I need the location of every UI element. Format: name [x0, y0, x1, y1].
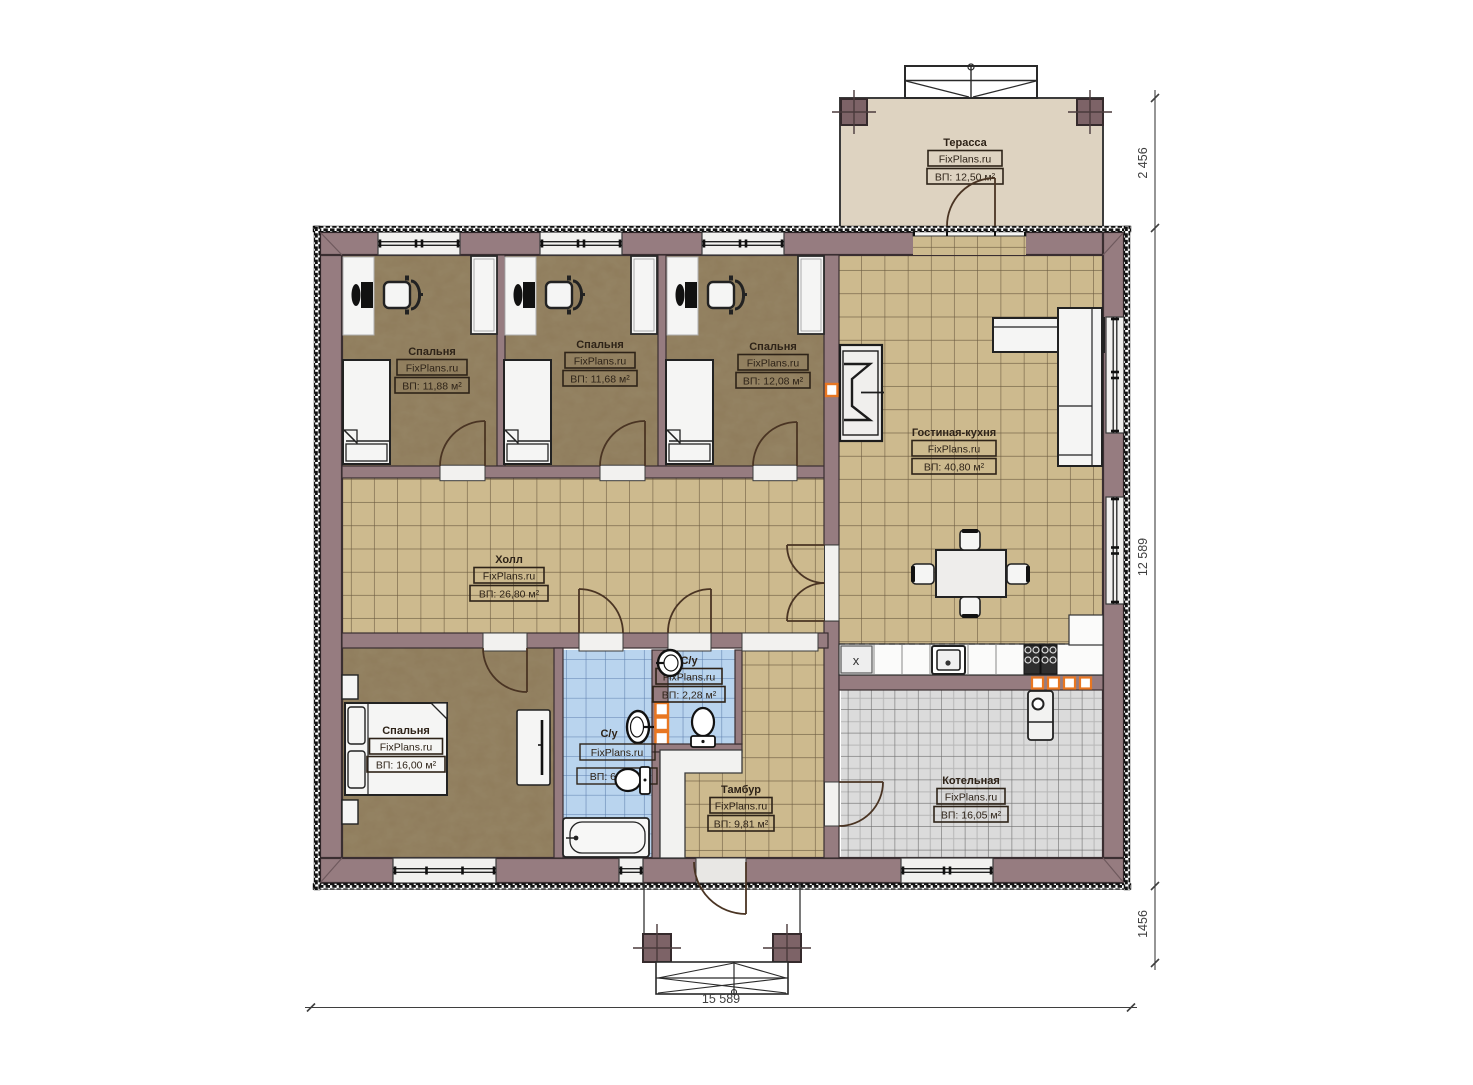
svg-text:FixPlans.ru: FixPlans.ru [574, 355, 627, 367]
svg-text:12 589: 12 589 [1136, 538, 1150, 576]
svg-text:Спальня: Спальня [408, 346, 456, 358]
svg-text:ВП: 12,08 м²: ВП: 12,08 м² [743, 375, 804, 387]
svg-text:Спальня: Спальня [576, 339, 624, 351]
svg-text:FixPlans.ru: FixPlans.ru [939, 153, 992, 165]
svg-text:ВП: 9,81 м²: ВП: 9,81 м² [714, 818, 769, 830]
svg-text:FixPlans.ru: FixPlans.ru [715, 800, 768, 812]
svg-text:ВП: 16,05 м²: ВП: 16,05 м² [941, 809, 1002, 821]
svg-text:FixPlans.ru: FixPlans.ru [406, 362, 459, 374]
svg-text:С/у: С/у [680, 655, 698, 667]
svg-text:С/у: С/у [600, 728, 618, 740]
svg-text:Спальня: Спальня [382, 725, 430, 737]
svg-text:Котельная: Котельная [942, 775, 1000, 787]
svg-text:Терасса: Терасса [943, 137, 987, 149]
svg-text:ВП: 26,80 м²: ВП: 26,80 м² [479, 588, 540, 600]
svg-text:FixPlans.ru: FixPlans.ru [483, 570, 536, 582]
svg-text:15 589: 15 589 [702, 992, 740, 1006]
svg-text:Гостиная-кухня: Гостиная-кухня [912, 427, 996, 439]
svg-text:2 456: 2 456 [1136, 147, 1150, 178]
svg-text:FixPlans.ru: FixPlans.ru [380, 741, 433, 753]
svg-text:x: x [853, 653, 860, 668]
svg-text:ВП: 11,68 м²: ВП: 11,68 м² [570, 373, 630, 385]
svg-text:ВП: 11,88 м²: ВП: 11,88 м² [402, 380, 462, 392]
svg-text:FixPlans.ru: FixPlans.ru [928, 443, 981, 455]
svg-text:FixPlans.ru: FixPlans.ru [591, 747, 644, 759]
svg-text:Тамбур: Тамбур [721, 784, 761, 796]
svg-text:ВП: 12,50 м²: ВП: 12,50 м² [935, 171, 996, 183]
svg-text:FixPlans.ru: FixPlans.ru [945, 791, 998, 803]
svg-text:1456: 1456 [1136, 910, 1150, 938]
svg-text:ВП: 40,80 м²: ВП: 40,80 м² [924, 461, 985, 473]
svg-text:ВП: 16,00 м²: ВП: 16,00 м² [376, 759, 437, 771]
svg-text:Спальня: Спальня [749, 341, 797, 353]
svg-text:FixPlans.ru: FixPlans.ru [747, 357, 800, 369]
svg-text:Холл: Холл [495, 554, 523, 566]
svg-text:ВП: 2,28 м²: ВП: 2,28 м² [662, 689, 717, 701]
